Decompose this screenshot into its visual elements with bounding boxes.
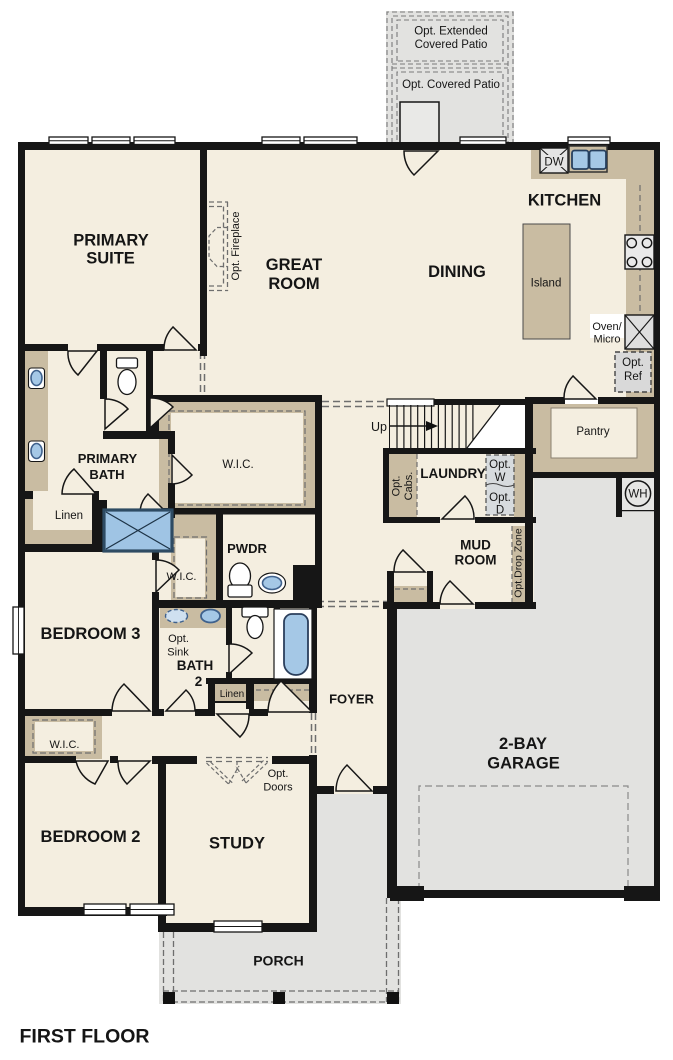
svg-text:ROOM: ROOM [455,553,497,568]
svg-text:KITCHEN: KITCHEN [528,192,601,210]
svg-text:FIRST FLOOR: FIRST FLOOR [20,1026,150,1048]
svg-text:Cabs.: Cabs. [403,472,415,501]
svg-text:Opt. Covered Patio: Opt. Covered Patio [402,79,500,91]
svg-text:BEDROOM 2: BEDROOM 2 [41,828,141,846]
svg-text:Opt.: Opt. [168,633,189,645]
svg-text:W: W [495,472,506,484]
svg-text:Opt.: Opt. [622,357,644,369]
svg-text:BATH: BATH [177,658,214,673]
svg-text:DW: DW [544,157,563,169]
svg-text:Island: Island [531,278,562,290]
svg-text:PRIMARY: PRIMARY [73,232,148,250]
svg-text:Oven/: Oven/ [592,321,622,333]
svg-text:Sink: Sink [167,647,189,659]
svg-text:Opt.Drop Zone: Opt.Drop Zone [513,528,525,598]
svg-text:Linen: Linen [220,689,244,700]
svg-text:D: D [496,505,504,517]
svg-text:W.I.C.: W.I.C. [50,739,80,751]
svg-text:Up: Up [371,420,387,434]
svg-text:WH: WH [628,489,647,501]
svg-text:Linen: Linen [55,510,83,522]
svg-text:SUITE: SUITE [86,250,135,268]
svg-text:DINING: DINING [428,263,486,281]
svg-text:PRIMARY: PRIMARY [78,451,138,466]
svg-text:PORCH: PORCH [253,953,304,969]
svg-text:Doors: Doors [263,782,293,794]
svg-text:W.I.C.: W.I.C. [167,571,197,583]
svg-text:Opt. Fireplace: Opt. Fireplace [230,211,242,280]
svg-text:2: 2 [195,674,203,689]
svg-text:BATH: BATH [89,467,124,482]
svg-text:2-BAY: 2-BAY [499,735,547,753]
svg-text:PWDR: PWDR [227,541,267,556]
svg-text:Micro: Micro [594,334,621,346]
svg-text:STUDY: STUDY [209,835,265,853]
svg-text:LAUNDRY: LAUNDRY [420,466,486,481]
svg-text:Opt. Extended: Opt. Extended [414,26,488,38]
svg-text:Opt.: Opt. [489,492,511,504]
svg-text:GREAT: GREAT [266,256,323,274]
svg-text:Opt.: Opt. [489,459,511,471]
svg-text:Covered Patio: Covered Patio [415,39,488,51]
svg-text:Pantry: Pantry [576,426,609,438]
svg-text:ROOM: ROOM [268,275,319,293]
svg-text:MUD: MUD [460,538,491,553]
svg-text:BEDROOM 3: BEDROOM 3 [41,625,141,643]
svg-text:W.I.C.: W.I.C. [222,459,253,471]
svg-text:GARAGE: GARAGE [487,755,559,773]
svg-text:Opt.: Opt. [391,476,403,497]
svg-text:Opt.: Opt. [268,768,289,780]
svg-text:Ref: Ref [624,371,643,383]
svg-text:FOYER: FOYER [329,692,374,707]
